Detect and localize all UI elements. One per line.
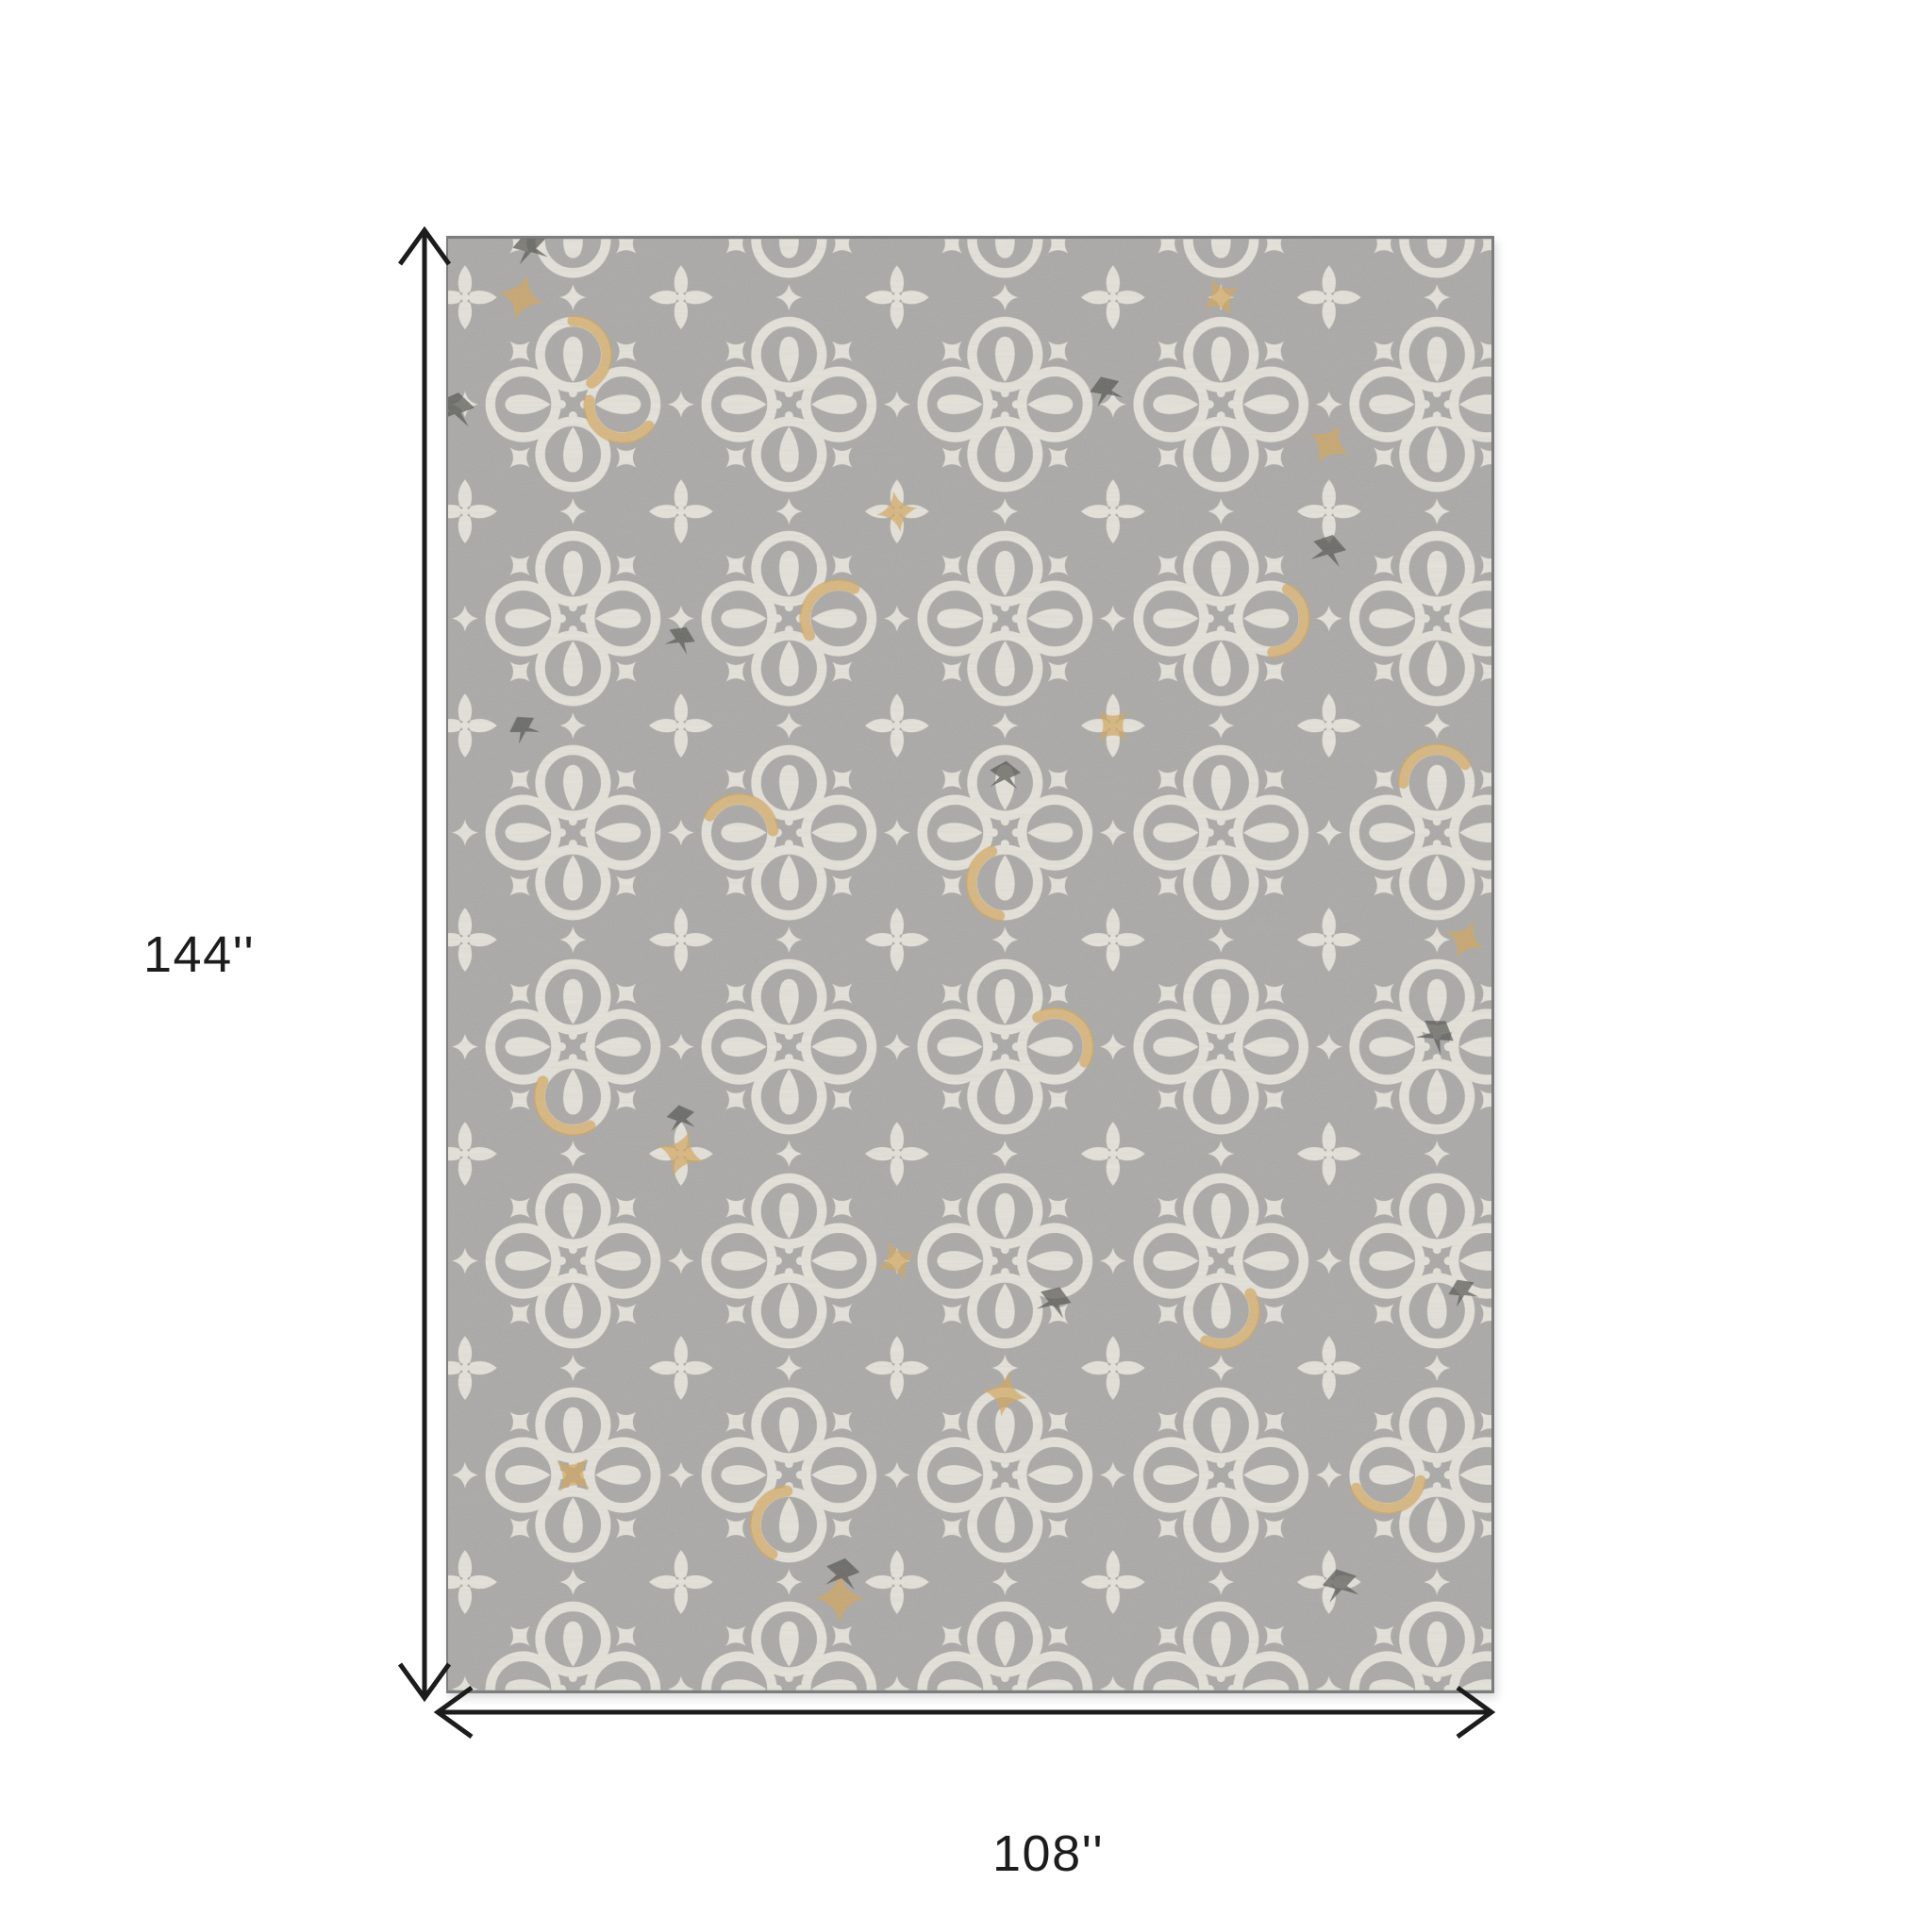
height-dimension-label: 144'' [143, 929, 255, 980]
weave-grain-texture [448, 239, 1491, 1690]
rug-image [446, 236, 1494, 1693]
width-dimension-label: 108'' [992, 1828, 1104, 1879]
height-arrow-icon [400, 230, 449, 1698]
rug-dimension-diagram: 144'' 108'' [0, 0, 1932, 1932]
rug-pattern-graphic [448, 239, 1491, 1690]
width-arrow-icon [438, 1688, 1491, 1737]
